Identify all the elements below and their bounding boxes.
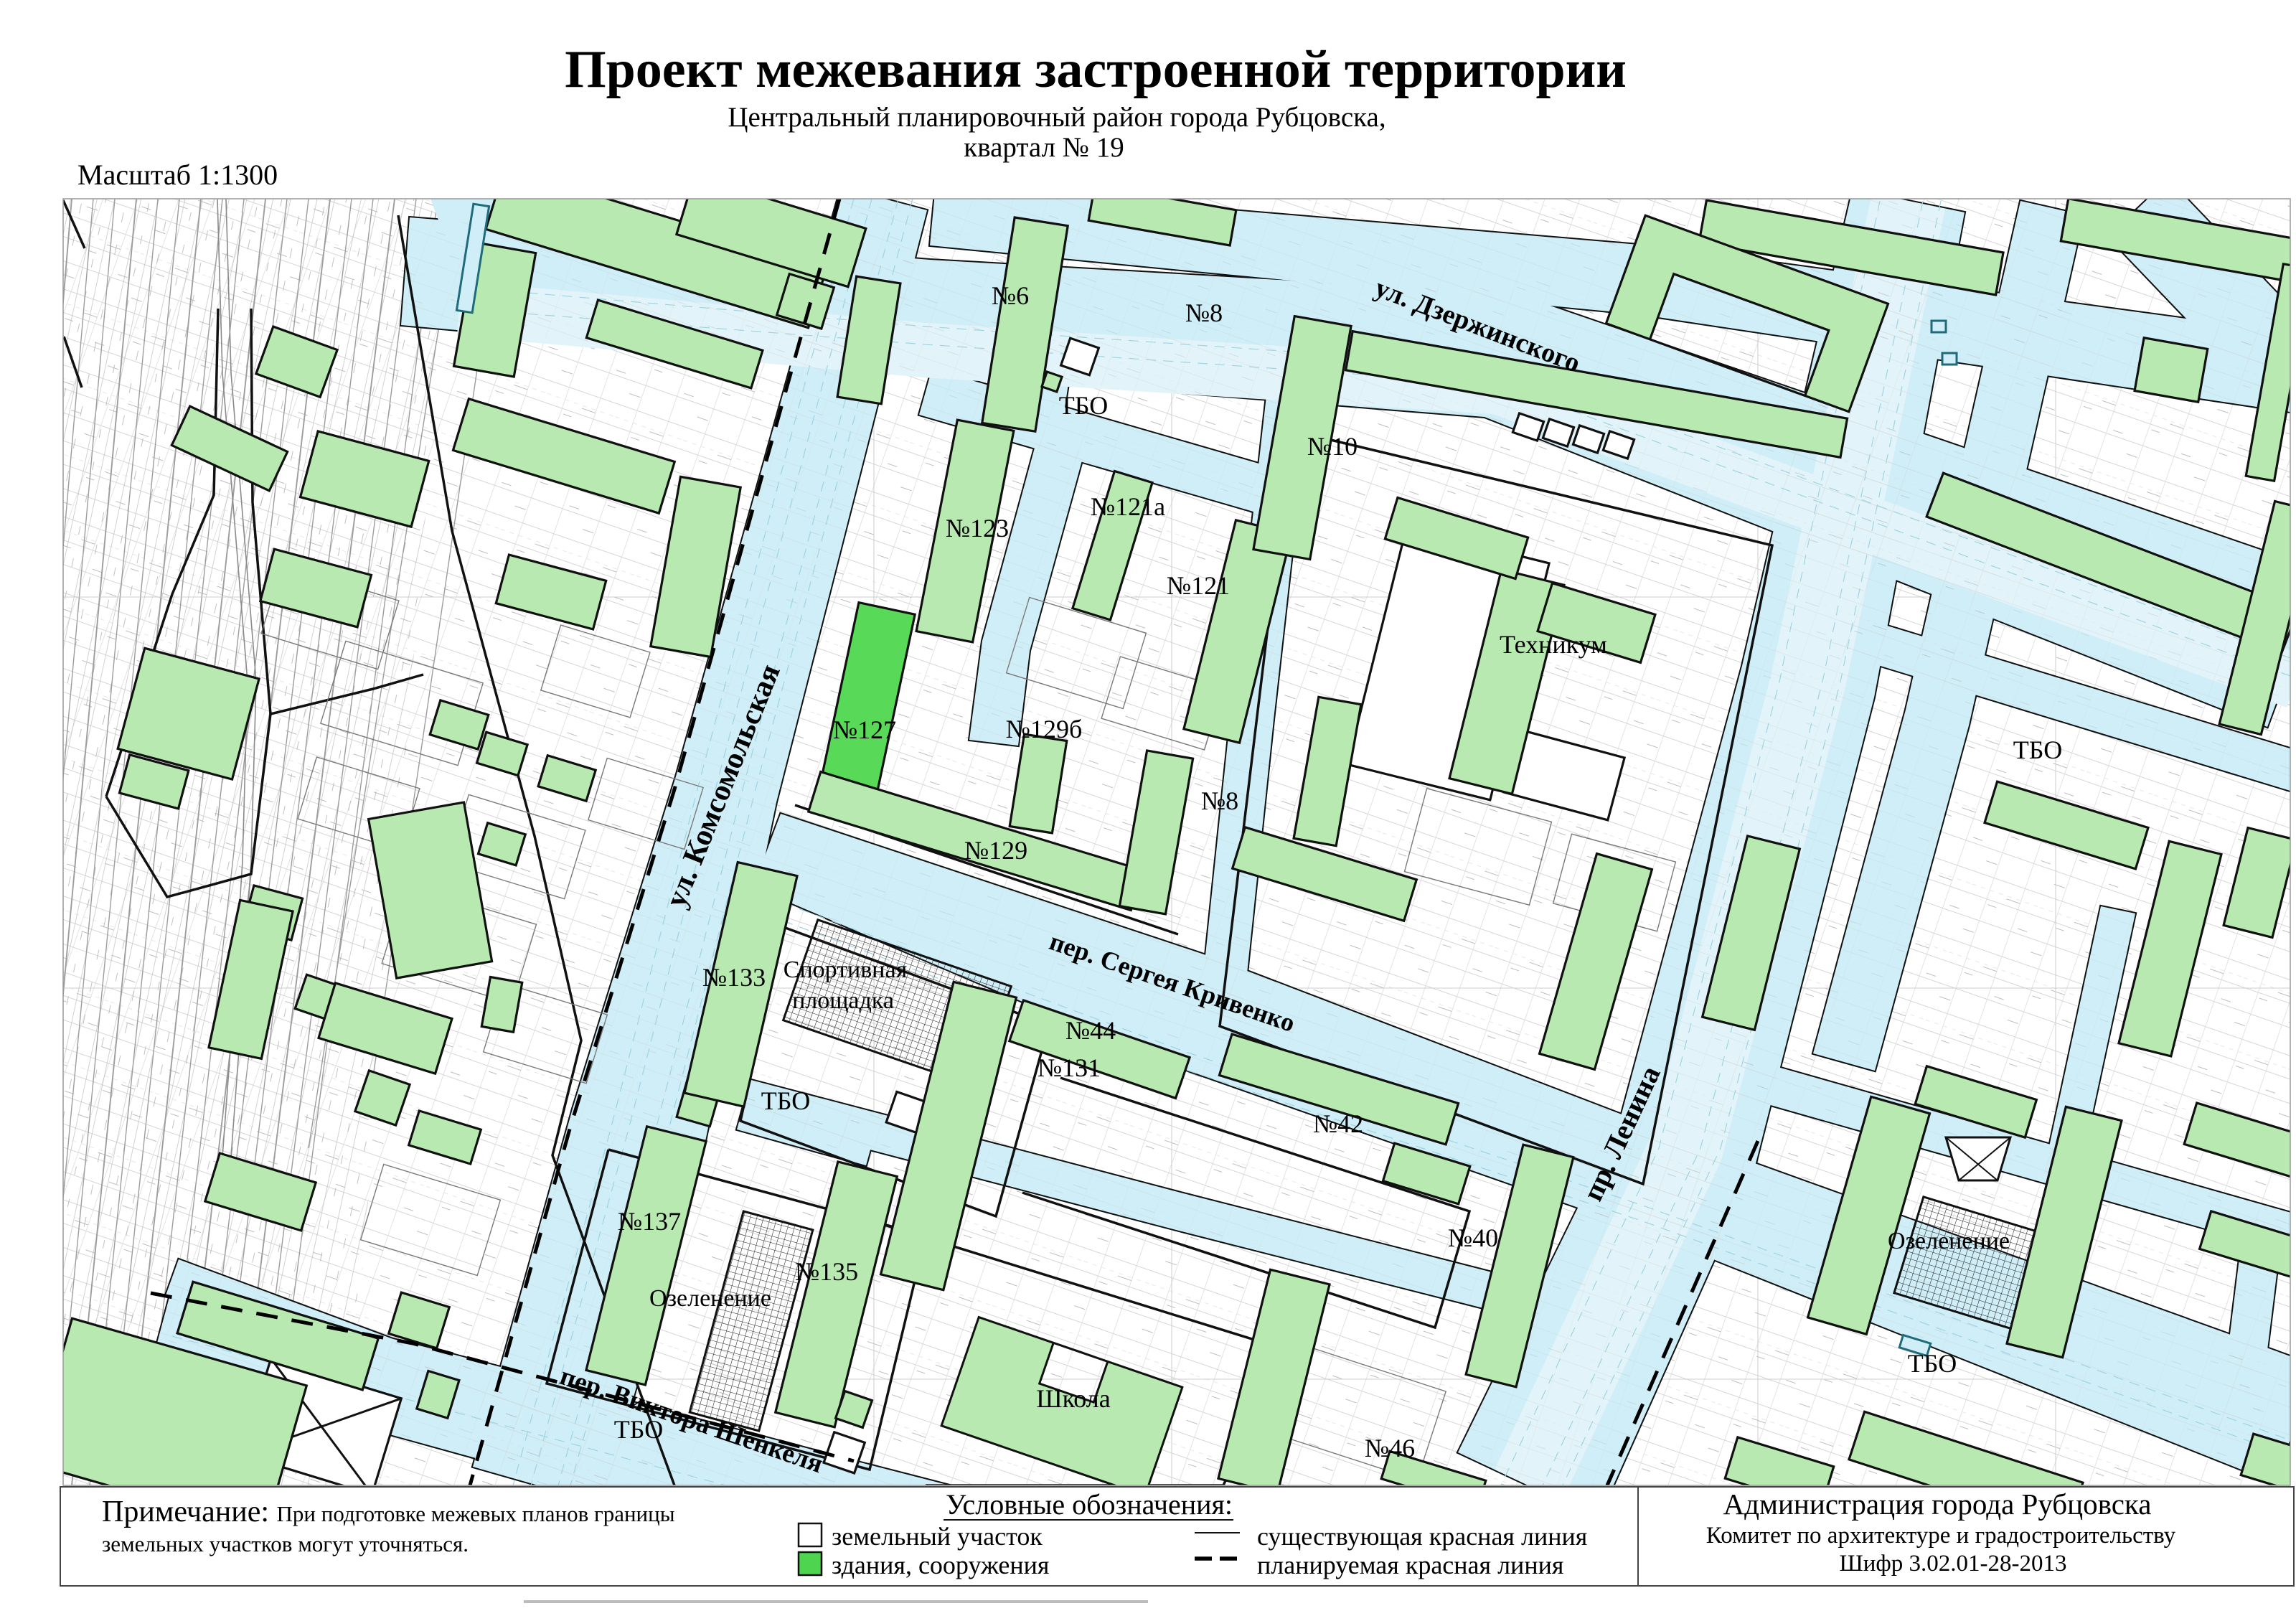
svg-text:№129: №129 [964, 836, 1027, 865]
svg-text:Администрация города Рубцовска: Администрация города Рубцовска [1723, 1488, 2152, 1521]
svg-text:земельных участков могут уточн: земельных участков могут уточняться. [102, 1531, 469, 1556]
svg-text:№6: №6 [992, 281, 1029, 310]
svg-text:№40: №40 [1448, 1223, 1498, 1252]
svg-text:№133: №133 [702, 963, 766, 992]
svg-text:№46: №46 [1365, 1434, 1415, 1462]
svg-text:ТБО: ТБО [1908, 1349, 1957, 1378]
svg-text:№8: №8 [1185, 299, 1223, 327]
svg-text:существующая красная линия: существующая красная линия [1257, 1522, 1587, 1551]
svg-text:квартал № 19: квартал № 19 [964, 132, 1124, 163]
svg-text:здания, сооружения: здания, сооружения [832, 1551, 1049, 1579]
svg-text:Озеленение: Озеленение [649, 1285, 771, 1312]
svg-text:Шифр 3.02.01-28-2013: Шифр 3.02.01-28-2013 [1839, 1551, 2066, 1577]
svg-text:Озеленение: Озеленение [1888, 1228, 2010, 1254]
svg-text:площадка: площадка [792, 987, 894, 1014]
svg-text:Комитет по архитектуре и гра: Комитет по архитектуре и градостроительс… [1706, 1523, 2176, 1549]
svg-text:№129б: №129б [1006, 715, 1083, 743]
svg-text:№121: №121 [1167, 571, 1230, 600]
svg-text:планируемая красная линия: планируемая красная линия [1257, 1551, 1563, 1579]
svg-text:№8: №8 [1201, 786, 1238, 815]
svg-text:ТБО: ТБО [1059, 391, 1108, 420]
svg-text:Школа: Школа [1036, 1384, 1110, 1413]
svg-text:Масштаб 1:1300: Масштаб 1:1300 [77, 159, 278, 191]
svg-text:№123: №123 [946, 514, 1009, 542]
svg-text:Центральный планировочный райо: Центральный планировочный район города Р… [728, 102, 1385, 133]
svg-text:№131: №131 [1038, 1053, 1101, 1082]
svg-text:ТБО: ТБО [2013, 736, 2062, 764]
svg-text:Техникум: Техникум [1500, 630, 1607, 659]
svg-text:Проект межевания застроенной т: Проект межевания застроенной территории [565, 40, 1627, 99]
svg-text:№121а: №121а [1091, 492, 1165, 521]
svg-text:№42: №42 [1313, 1109, 1363, 1138]
svg-text:ТБО: ТБО [614, 1415, 663, 1444]
svg-text:№137: №137 [618, 1207, 681, 1236]
svg-text:№135: №135 [795, 1257, 858, 1286]
svg-text:№10: №10 [1307, 432, 1358, 461]
svg-text:Условные обозначения:: Условные обозначения: [946, 1488, 1233, 1521]
svg-text:ТБО: ТБО [761, 1086, 810, 1115]
svg-text:земельный участок: земельный участок [832, 1522, 1043, 1551]
svg-text:№44: №44 [1065, 1016, 1116, 1045]
svg-text:№127: №127 [833, 715, 896, 744]
svg-text:Спортивная: Спортивная [784, 957, 908, 983]
